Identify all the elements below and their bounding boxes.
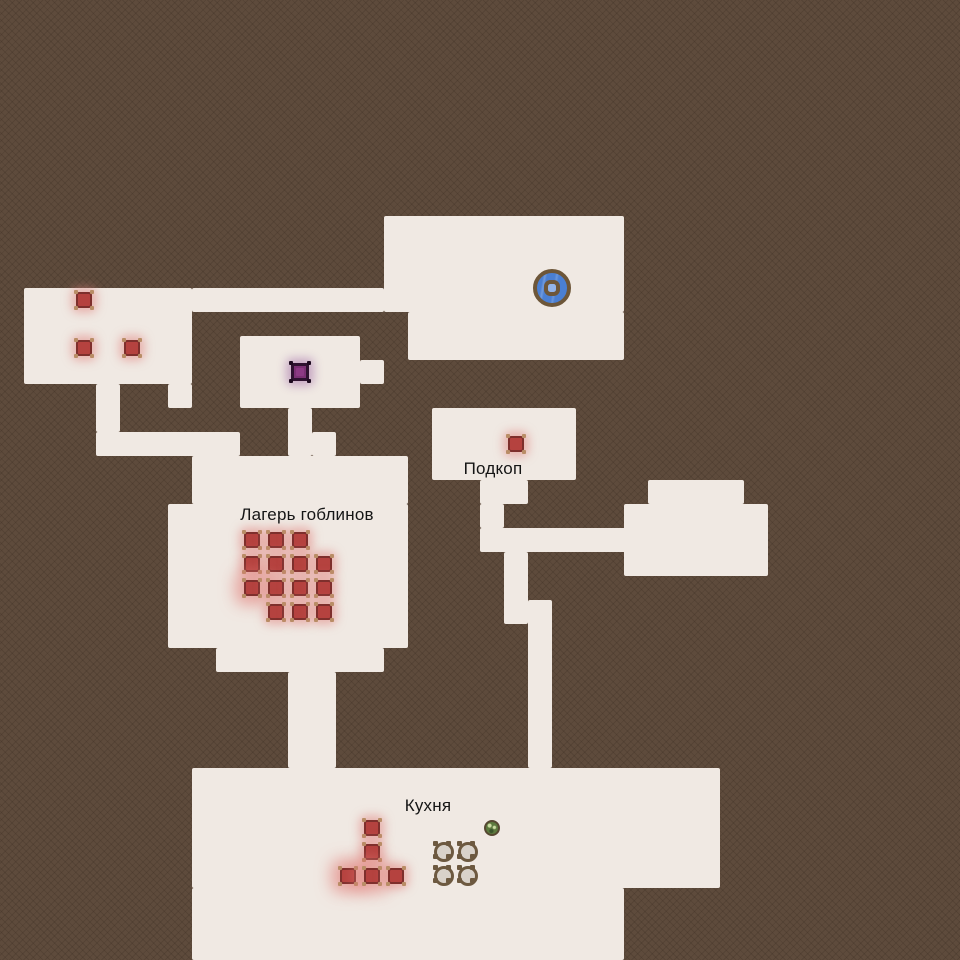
enemy-icon [292,532,308,548]
enemy-icon [292,556,308,572]
pot-icon [458,866,478,886]
room-purple-tab [360,360,384,384]
camp-top-band [192,456,408,504]
enemy-icon [268,580,284,596]
corridor-left-vertical [96,384,120,432]
kitchen-main [192,768,720,888]
enemy-icon [76,292,92,308]
corridor-left-horizontal [96,432,240,456]
corridor-podkop-down-b [480,504,504,528]
enemy-icon [124,340,140,356]
enemy-icon [316,556,332,572]
room-east-top [648,480,744,504]
enemy-icon [316,604,332,620]
camp-bottom-lip [216,648,384,672]
corridor-podkop-horizontal [480,528,648,552]
pot-icon [434,842,454,862]
camp-main [168,504,408,648]
enemy-icon [244,532,260,548]
enemy-icon [316,580,332,596]
camp-step [312,432,336,456]
enemy-icon [388,868,404,884]
corridor-camp-kitchen [288,672,336,768]
enemy-icon [268,532,284,548]
enemy-icon [268,604,284,620]
enemy-icon [364,820,380,836]
corridor-purple-camp [288,408,312,456]
plant-icon [484,820,500,836]
corridor-top [192,288,384,312]
enemy-icon [244,556,260,572]
enemy-icon [292,580,308,596]
room-top-left-stub [168,384,192,408]
pot-icon [458,842,478,862]
room-east-main [624,504,768,576]
label-goblin-camp: Лагерь гоблинов [240,505,373,525]
well-icon [533,269,571,307]
enemy-icon [292,604,308,620]
kitchen-lower [192,888,624,960]
enemy-icon [508,436,524,452]
purple-enemy-icon [291,363,309,381]
enemy-icon [364,868,380,884]
room-top-left [24,288,192,384]
enemy-icon [268,556,284,572]
dungeon-map-viewport[interactable]: Лагерь гоблиновПодкопКухня [0,0,960,960]
enemy-icon [340,868,356,884]
well-room-upper [384,216,624,312]
well-room-lower [408,312,624,360]
corridor-east-down-b [528,600,552,768]
label-kitchen: Кухня [405,796,452,816]
corridor-east-down-a [504,552,528,624]
pot-icon [434,866,454,886]
enemy-icon [244,580,260,596]
enemy-icon [76,340,92,356]
corridor-podkop-down-a [480,480,528,504]
label-podkop: Подкоп [464,459,523,479]
enemy-icon [364,844,380,860]
